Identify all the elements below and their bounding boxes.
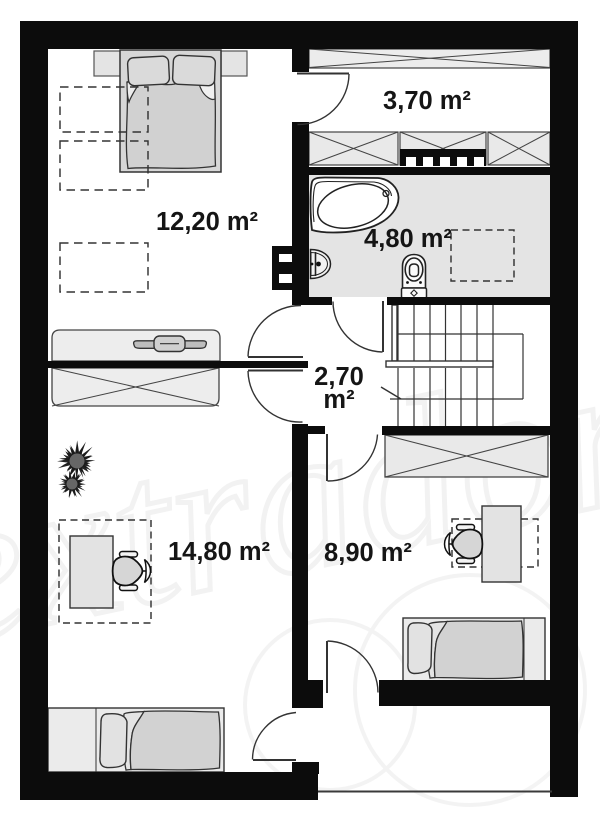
svg-text:12,20 m²: 12,20 m²: [156, 208, 258, 236]
svg-text:8,90 m²: 8,90 m²: [324, 539, 412, 567]
svg-text:4,80 m²: 4,80 m²: [364, 225, 452, 253]
svg-text:14,80 m²: 14,80 m²: [168, 538, 270, 566]
svg-text:m²: m²: [323, 386, 354, 414]
svg-text:3,70 m²: 3,70 m²: [383, 87, 471, 115]
